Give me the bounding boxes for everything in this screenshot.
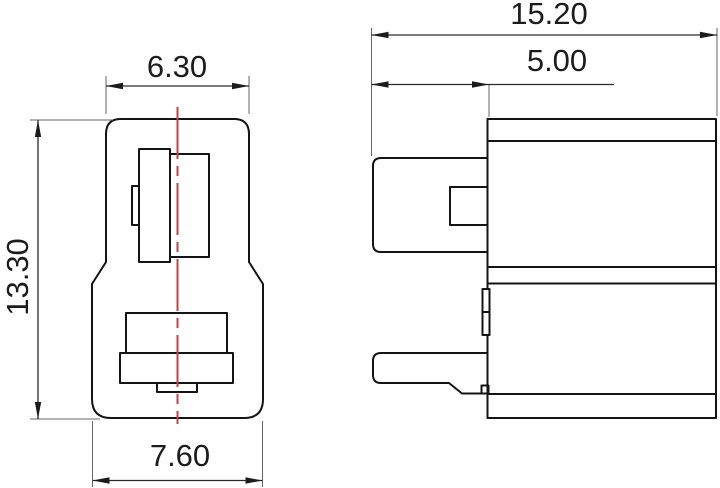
arrowhead-right — [472, 81, 489, 87]
technical-drawing: 6.30 13.30 7.60 — [0, 0, 720, 488]
front-view: 6.30 13.30 7.60 — [0, 49, 263, 487]
dim-front-height: 13.30 — [0, 120, 113, 419]
front-contact-left — [139, 149, 170, 262]
arrowhead-left — [372, 81, 389, 87]
dim-label-width-top: 6.30 — [147, 49, 207, 84]
arrowhead-left — [106, 83, 123, 89]
arrowhead-right — [232, 83, 249, 89]
side-lower-tab — [373, 353, 488, 394]
side-body-outline — [488, 119, 717, 418]
dim-side-total-width: 15.20 — [372, 0, 718, 156]
arrowhead-down — [35, 402, 41, 419]
drawing-canvas: 6.30 13.30 7.60 — [0, 0, 720, 488]
arrowhead-left — [93, 477, 110, 483]
front-contact-right — [170, 154, 209, 257]
dim-label-width-bottom: 7.60 — [150, 438, 210, 473]
arrowhead-up — [35, 120, 41, 137]
dim-label-total-width: 15.20 — [510, 0, 588, 31]
arrowhead-right — [246, 477, 263, 483]
arrowhead-left — [372, 32, 389, 38]
dim-front-width-top: 6.30 — [106, 49, 249, 114]
dim-side-tab-depth: 5.00 — [372, 43, 615, 117]
arrowhead-right — [700, 32, 717, 38]
dim-label-height: 13.30 — [0, 238, 35, 316]
side-view: 15.20 5.00 — [372, 0, 718, 418]
side-upper-tab — [373, 158, 488, 252]
side-upper-tab-square — [450, 187, 488, 225]
dim-front-width-bottom: 7.60 — [93, 421, 263, 487]
front-contact-side-tab — [132, 186, 139, 225]
dim-label-tab-depth: 5.00 — [527, 43, 587, 78]
